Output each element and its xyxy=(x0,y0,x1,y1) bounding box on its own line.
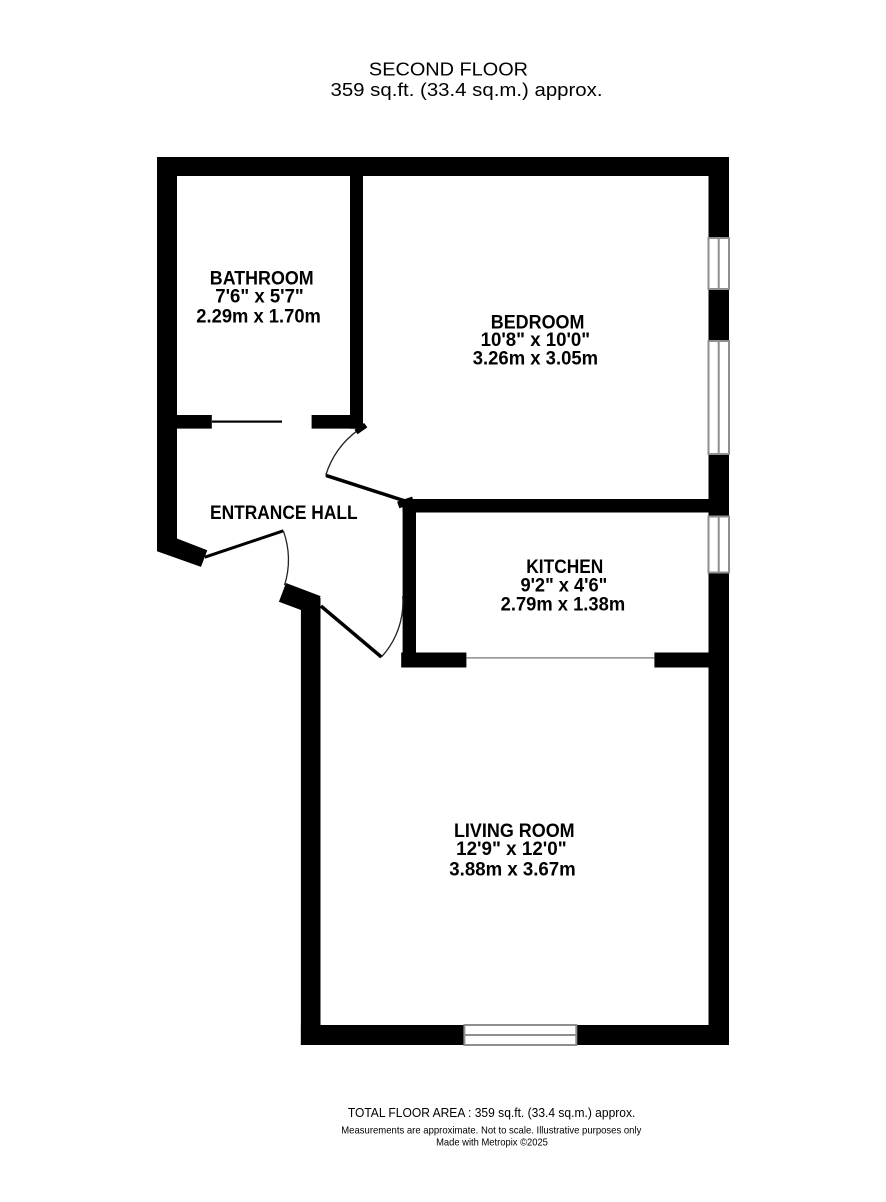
svg-text:7'6" x 5'7": 7'6" x 5'7" xyxy=(215,287,304,308)
svg-text:359 sq.ft. (33.4 sq.m.) approx: 359 sq.ft. (33.4 sq.m.) approx. xyxy=(331,80,603,100)
svg-text:TOTAL FLOOR AREA : 359 sq.ft.: TOTAL FLOOR AREA : 359 sq.ft. (33.4 sq.m… xyxy=(348,1106,636,1120)
svg-text:Measurements are approximate.: Measurements are approximate. Not to sca… xyxy=(341,1124,642,1136)
svg-text:12'9" x 12'0": 12'9" x 12'0" xyxy=(456,839,567,860)
svg-text:3.88m x 3.67m: 3.88m x 3.67m xyxy=(449,860,575,881)
svg-text:3.26m x 3.05m: 3.26m x 3.05m xyxy=(473,348,598,369)
svg-text:SECOND FLOOR: SECOND FLOOR xyxy=(369,59,528,79)
svg-text:2.29m x 1.70m: 2.29m x 1.70m xyxy=(196,306,321,327)
svg-text:Made with Metropix ©2025: Made with Metropix ©2025 xyxy=(436,1136,548,1148)
svg-text:9'2" x 4'6": 9'2" x 4'6" xyxy=(520,575,607,596)
svg-text:2.79m x 1.38m: 2.79m x 1.38m xyxy=(501,594,626,615)
svg-text:ENTRANCE HALL: ENTRANCE HALL xyxy=(210,503,358,524)
